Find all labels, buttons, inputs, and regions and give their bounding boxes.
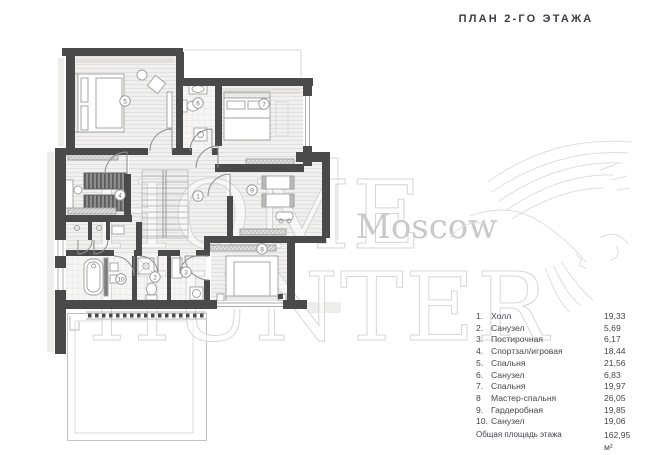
dresser-icon — [167, 92, 172, 128]
svg-text:6: 6 — [196, 100, 200, 107]
floor-plan-page: ПЛАН 2-ГО ЭТАЖА — [0, 0, 646, 455]
toilet-icon — [146, 283, 157, 300]
nightstand-icon — [217, 294, 224, 301]
gym-mat-icon — [84, 173, 126, 189]
washer-icon — [112, 226, 124, 234]
room-marker: 9 — [247, 185, 257, 195]
svg-text:8: 8 — [260, 246, 264, 253]
room-marker: 10 — [116, 274, 126, 284]
room-marker: 7 — [259, 99, 269, 109]
room-marker: 4 — [115, 190, 125, 200]
svg-text:5: 5 — [123, 98, 127, 105]
legend-row: 3.Постирочная6,17 — [476, 334, 640, 346]
svg-text:4: 4 — [118, 192, 122, 199]
room-marker: 8 — [257, 244, 267, 254]
legend-row: 7.Спальня19,97 — [476, 381, 640, 393]
legend-row: 1.Холл19,33 — [476, 311, 640, 323]
room-marker: 1 — [193, 191, 203, 201]
legend-row: 8Мастер-спальня26,05 — [476, 393, 640, 405]
svg-text:1: 1 — [196, 193, 200, 200]
room-marker: 6 — [193, 98, 203, 108]
watermark-city: Moscow — [356, 207, 497, 247]
stool-icon — [74, 186, 82, 194]
washing-machine-icon — [190, 287, 203, 300]
room-legend: 1.Холл19,33 2.Санузел5,69 3.Постирочная6… — [476, 311, 640, 453]
room-marker: 3 — [181, 267, 191, 277]
legend-row: 5.Спальня21,56 — [476, 358, 640, 370]
bed-icon — [72, 74, 124, 132]
svg-text:9: 9 — [250, 187, 254, 194]
bed-icon — [226, 256, 278, 302]
svg-text:7: 7 — [262, 101, 266, 108]
legend-row: 6.Санузел6,83 — [476, 370, 640, 382]
svg-text:10: 10 — [117, 276, 125, 283]
legend-row: 9.Гардеробная19,85 — [476, 405, 640, 417]
room-marker: 2 — [150, 272, 160, 282]
legend-row: 2.Санузел5,69 — [476, 323, 640, 335]
radiator — [240, 229, 286, 235]
radiator — [68, 208, 116, 214]
legend-row: 10.Санузел19,06 — [476, 416, 640, 428]
legend-total: Общая площадь этажа 162,95 м² — [476, 429, 640, 453]
svg-text:2: 2 — [153, 274, 157, 281]
legend-row: 4.Спортзал/игровая18,44 — [476, 346, 640, 358]
side-table-icon — [137, 70, 147, 80]
room-marker: 5 — [120, 96, 130, 106]
svg-text:3: 3 — [184, 269, 188, 276]
